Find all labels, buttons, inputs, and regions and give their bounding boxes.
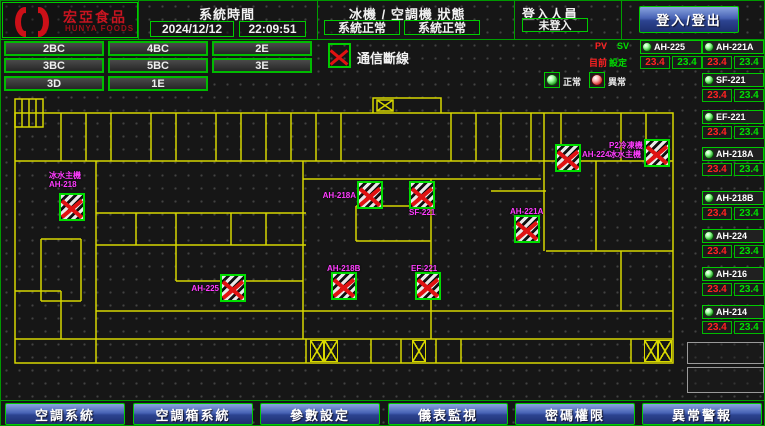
nav-button[interactable]: 異常警報 bbox=[642, 403, 762, 425]
stair-icon bbox=[310, 340, 324, 362]
unit-comm-loss-marker[interactable]: AH-218A bbox=[357, 181, 383, 209]
marker-unit-label: AH-218B bbox=[327, 264, 360, 273]
stair-icon bbox=[644, 340, 658, 362]
nav-button-label: 空調箱系統 bbox=[155, 405, 230, 424]
unit-comm-loss-marker[interactable] bbox=[59, 193, 85, 221]
unit-comm-loss-marker[interactable]: SF-221 bbox=[409, 181, 435, 209]
nav-button-label: 密碼權限 bbox=[545, 405, 605, 424]
nav-button[interactable]: 參數設定 bbox=[260, 403, 380, 425]
nav-button-label: 參數設定 bbox=[290, 405, 350, 424]
nav-button[interactable]: 空調系統 bbox=[5, 403, 125, 425]
nav-button-label: 空調系統 bbox=[35, 405, 95, 424]
marker-unit-label: SF-221 bbox=[409, 208, 435, 217]
marker-unit-label: AH-225 bbox=[191, 284, 219, 293]
unit-comm-loss-marker[interactable]: EF-221 bbox=[415, 272, 441, 300]
nav-button[interactable]: 密碼權限 bbox=[515, 403, 635, 425]
nav-button[interactable]: 儀表監視 bbox=[388, 403, 508, 425]
unit-comm-loss-marker[interactable] bbox=[644, 139, 670, 167]
equipment-text-label: 冰水主機AH-218 bbox=[49, 171, 81, 189]
unit-comm-loss-marker[interactable]: AH-218B bbox=[331, 272, 357, 300]
stair-icon bbox=[412, 340, 426, 362]
unit-comm-loss-marker[interactable]: AH-224 bbox=[555, 144, 581, 172]
unit-comm-loss-marker[interactable]: AH-225 bbox=[220, 274, 246, 302]
nav-button-label: 異常警報 bbox=[672, 405, 732, 424]
marker-unit-label: AH-221A bbox=[510, 207, 543, 216]
unit-comm-loss-marker[interactable]: AH-221A bbox=[514, 215, 540, 243]
marker-unit-label: AH-224 bbox=[582, 150, 610, 159]
equipment-text-label: P2冷凍機冰水主機 bbox=[609, 141, 643, 159]
stair-icon bbox=[324, 340, 338, 362]
stair-icon bbox=[658, 340, 672, 362]
floorplan-walls bbox=[1, 1, 765, 426]
marker-unit-label: EF-221 bbox=[411, 264, 437, 273]
hmi-screen: { "header": { "logo_title": "宏亞食品", "log… bbox=[0, 0, 765, 426]
marker-unit-label: AH-218A bbox=[323, 191, 356, 200]
nav-top-line bbox=[1, 400, 765, 401]
nav-button[interactable]: 空調箱系統 bbox=[133, 403, 253, 425]
nav-button-label: 儀表監視 bbox=[418, 405, 478, 424]
